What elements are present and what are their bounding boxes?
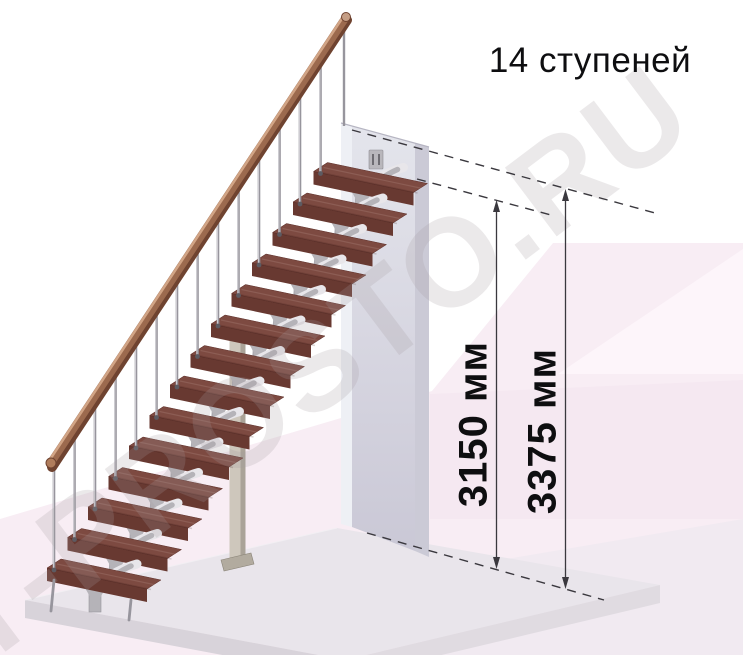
step-leg <box>129 600 131 620</box>
steps-count-label: 14 ступеней <box>489 41 691 81</box>
handrail-end-cap <box>46 458 56 468</box>
dimension-label-3150: 3150 мм <box>452 341 497 507</box>
baluster-base <box>257 263 262 268</box>
baluster-base <box>298 202 303 207</box>
baluster-base <box>236 293 241 298</box>
baluster-base <box>216 324 221 329</box>
dimension-label-3375: 3375 мм <box>521 348 566 514</box>
baluster-base <box>195 354 200 359</box>
staircase-illustration-svg: LESTNICY-PROSTO.RU <box>0 0 743 655</box>
handrail-top-cap <box>342 13 351 22</box>
staircase-diagram: LESTNICY-PROSTO.RU 14 ступеней 3150 мм 3… <box>0 0 743 655</box>
baluster-base <box>277 232 282 237</box>
wall-mount-bracket <box>369 150 383 169</box>
baluster-base <box>318 171 323 176</box>
